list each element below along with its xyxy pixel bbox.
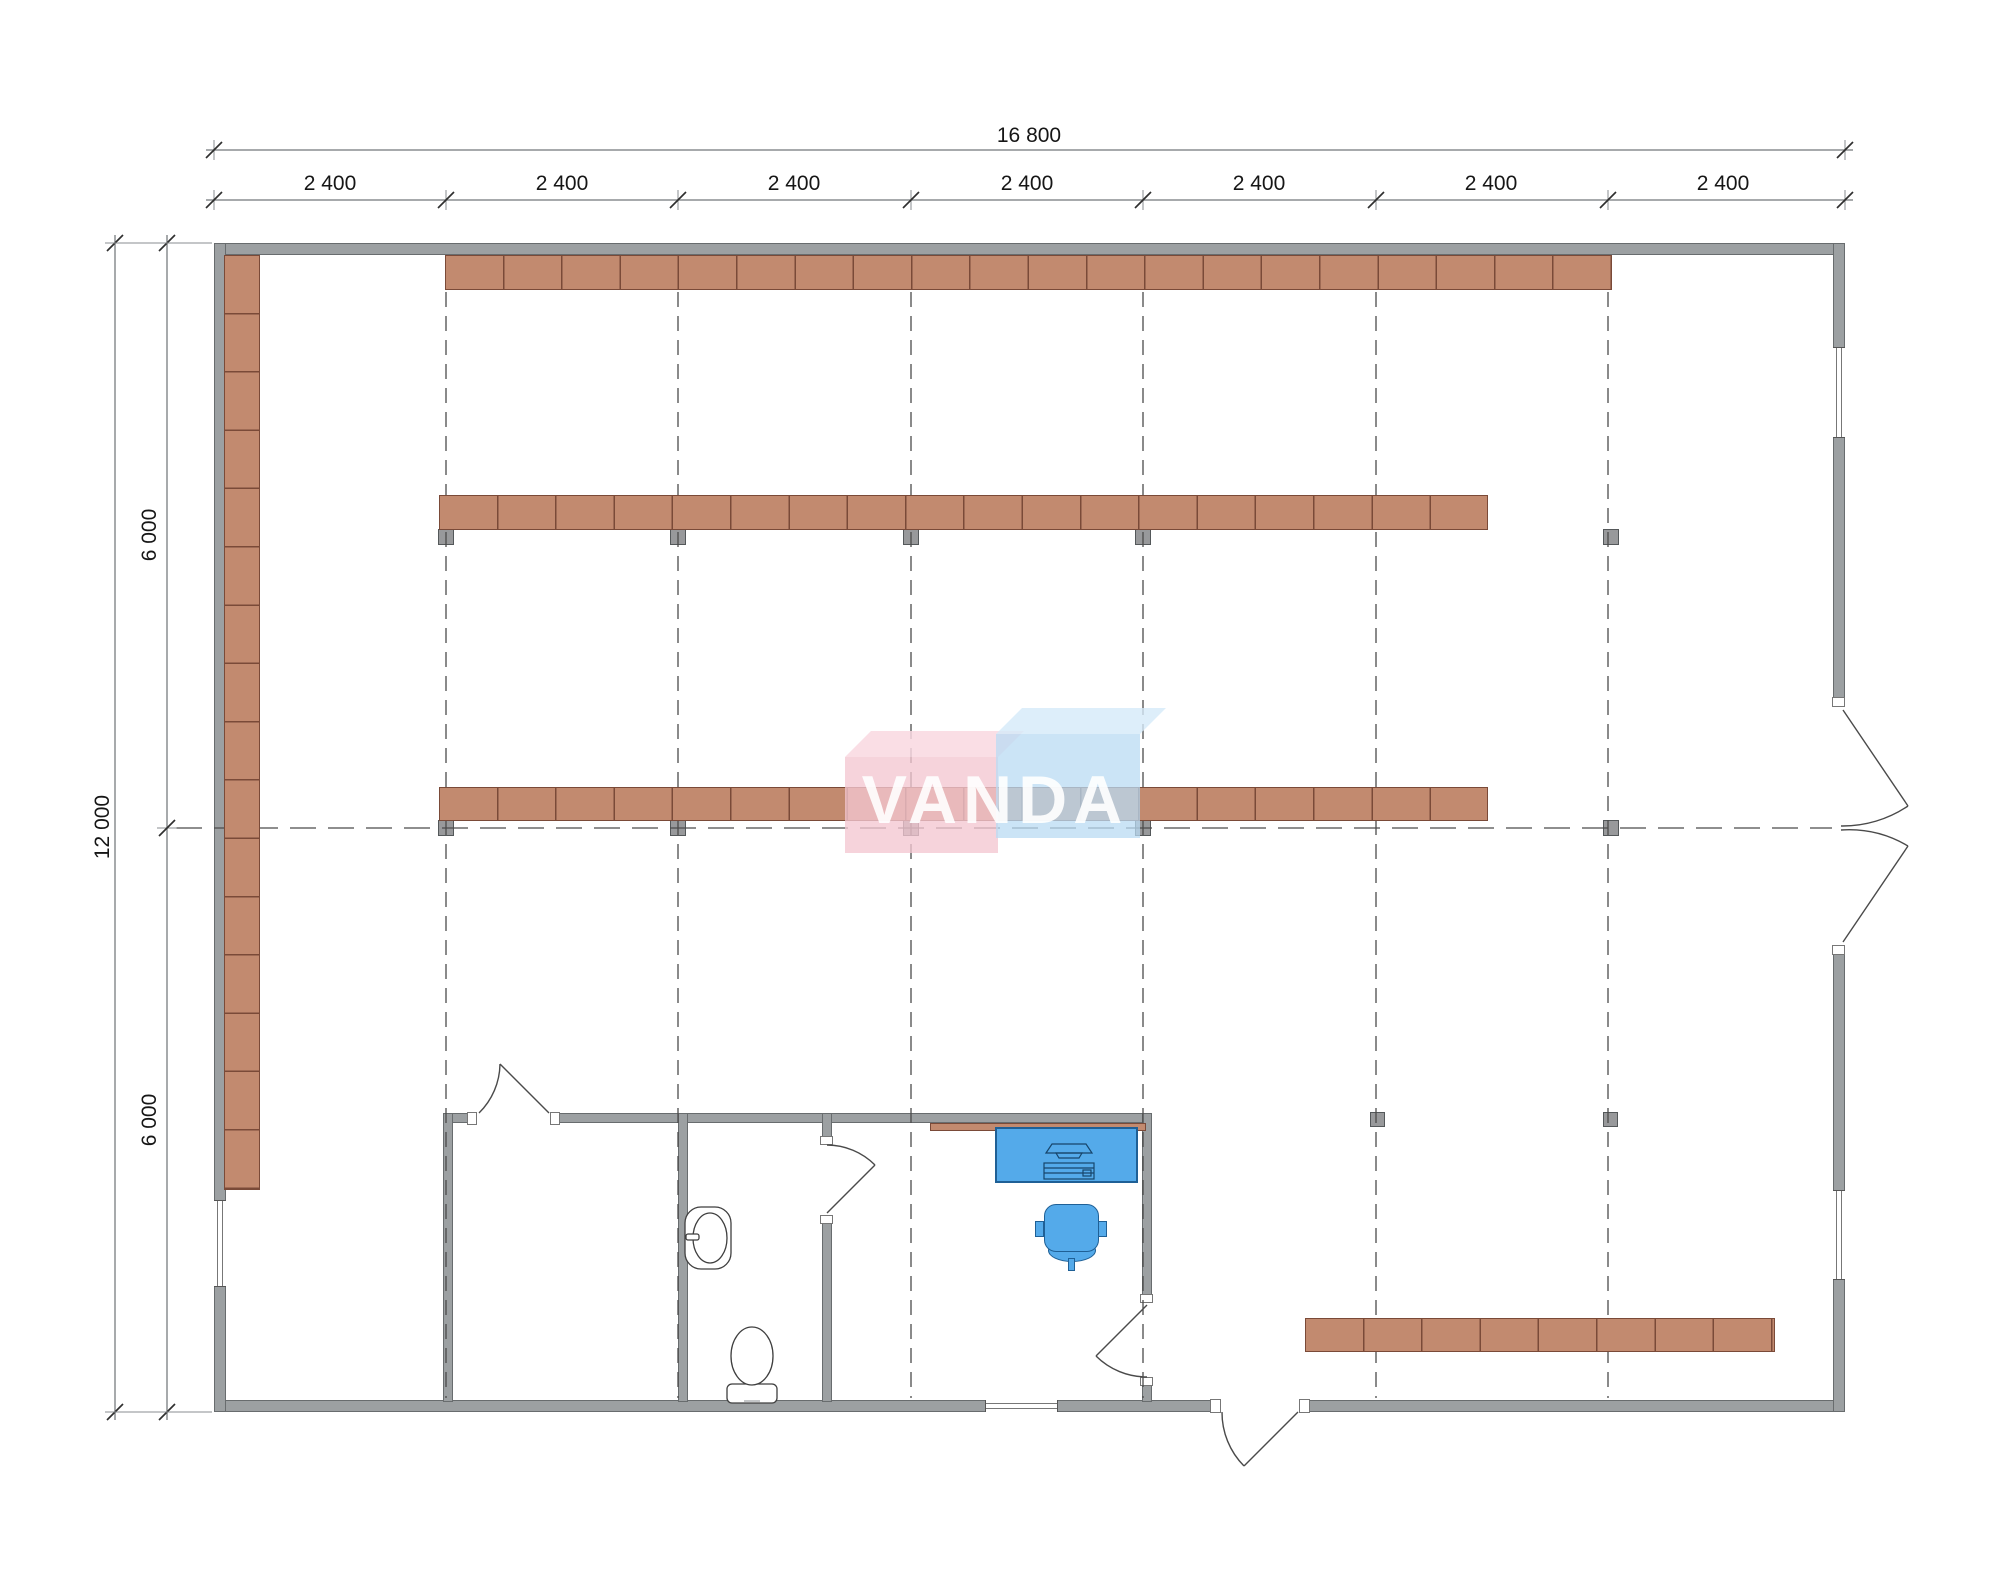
dim-top-segment: 2 400 [1446, 172, 1536, 196]
door-double-right [1841, 710, 1908, 942]
keyboard [1044, 1163, 1094, 1179]
dim-top-segment: 2 400 [1678, 172, 1768, 196]
dim-left-segment: 6 000 [138, 485, 162, 585]
dim-top-overall: 16 800 [954, 124, 1104, 148]
dim-top-segment: 2 400 [517, 172, 607, 196]
toilet [727, 1327, 777, 1403]
dimension-line-left-segments [105, 235, 212, 1420]
dim-left-segment: 6 000 [138, 1070, 162, 1170]
sink [685, 1207, 731, 1269]
dim-top-segment: 2 400 [1214, 172, 1304, 196]
door-bathroom [827, 1145, 875, 1213]
floor-plan: VANDA [0, 0, 2000, 1574]
door-office [1096, 1305, 1147, 1377]
monitor [1046, 1144, 1092, 1158]
dim-left-overall: 12 000 [91, 767, 115, 887]
linework-layer [0, 0, 2000, 1574]
dim-top-segment: 2 400 [285, 172, 375, 196]
door-entrance [1222, 1412, 1298, 1466]
door-room1 [479, 1064, 549, 1113]
dim-top-segment: 2 400 [749, 172, 839, 196]
dim-top-segment: 2 400 [982, 172, 1072, 196]
